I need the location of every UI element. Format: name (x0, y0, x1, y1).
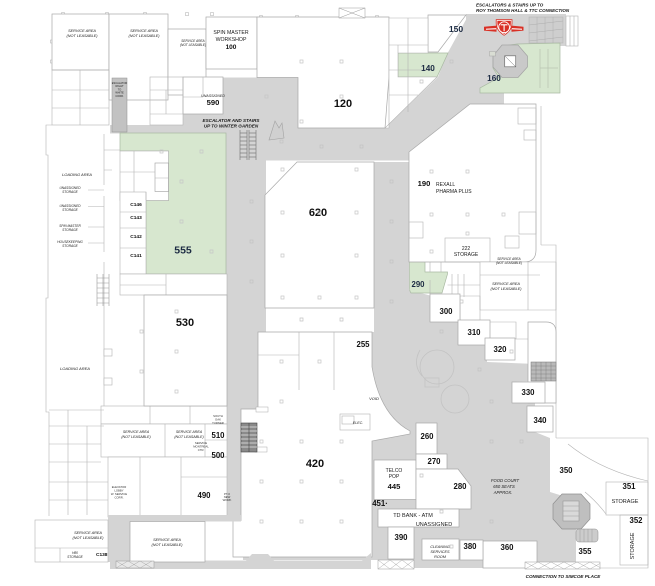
svg-text:380: 380 (463, 542, 477, 551)
svg-text:120: 120 (334, 98, 352, 110)
svg-text:SERVICE AREA: SERVICE AREA (492, 282, 520, 286)
svg-text:TURNER: TURNER (212, 421, 224, 425)
svg-text:APPROX.: APPROX. (493, 490, 513, 495)
svg-text:SERVICE AREA: SERVICE AREA (68, 29, 96, 33)
svg-text:352: 352 (629, 516, 643, 525)
svg-text:LOADING AREA: LOADING AREA (60, 366, 90, 371)
svg-text:STORAGE: STORAGE (62, 244, 78, 248)
svg-text:UP TO WINTER GARDEN: UP TO WINTER GARDEN (204, 124, 259, 129)
svg-text:REXALL: REXALL (436, 182, 455, 188)
svg-text:FOOD COURT: FOOD COURT (491, 478, 520, 483)
svg-text:530: 530 (176, 317, 194, 329)
svg-text:190: 190 (418, 179, 431, 188)
svg-text:ROY THOMSON HALL & TTC CONNECT: ROY THOMSON HALL & TTC CONNECTION (476, 8, 570, 13)
svg-text:SERVICES: SERVICES (430, 550, 450, 554)
svg-text:STORAGE: STORAGE (62, 228, 78, 232)
svg-text:340: 340 (533, 416, 547, 425)
svg-text:(NOT LEASABLE): (NOT LEASABLE) (72, 536, 104, 540)
svg-text:STORAGE: STORAGE (67, 555, 83, 559)
svg-text:555: 555 (174, 245, 192, 257)
svg-text:STORAGE: STORAGE (630, 532, 636, 559)
svg-text:WORK: WORK (223, 498, 232, 502)
svg-text:LOADING AREA: LOADING AREA (62, 172, 92, 177)
svg-text:SPIN MASTER: SPIN MASTER (213, 30, 248, 36)
svg-text:590: 590 (207, 98, 220, 107)
svg-text:650 SEATS: 650 SEATS (493, 484, 515, 489)
svg-text:351: 351 (622, 482, 636, 491)
svg-text:390: 390 (394, 533, 408, 542)
svg-text:330: 330 (521, 388, 535, 397)
svg-text:SERVICE AREA: SERVICE AREA (123, 430, 150, 434)
svg-text:C143: C143 (130, 215, 142, 221)
svg-text:STORAGE: STORAGE (612, 499, 639, 505)
svg-text:ESCALATOR AND STAIRS: ESCALATOR AND STAIRS (203, 118, 261, 123)
svg-text:TD BANK - ATM: TD BANK - ATM (393, 513, 433, 519)
svg-text:310: 310 (467, 328, 481, 337)
svg-text:290: 290 (411, 280, 425, 289)
svg-text:CORR.: CORR. (115, 94, 124, 98)
svg-text:420: 420 (306, 458, 324, 470)
svg-text:255: 255 (356, 340, 370, 349)
svg-text:150: 150 (449, 24, 464, 34)
svg-text:CLEANING: CLEANING (430, 545, 449, 549)
svg-text:ESCALATORS & STAIRS UP TO: ESCALATORS & STAIRS UP TO (476, 3, 544, 8)
svg-text:445: 445 (388, 482, 401, 491)
svg-text:C141: C141 (130, 253, 142, 259)
svg-text:STORAGE: STORAGE (62, 190, 78, 194)
svg-text:C146: C146 (130, 202, 142, 208)
svg-text:355: 355 (578, 547, 592, 556)
svg-text:UNASSIGNED: UNASSIGNED (416, 522, 452, 528)
svg-text:300: 300 (439, 307, 453, 316)
svg-text:510: 510 (211, 431, 225, 440)
svg-text:CORR.: CORR. (114, 496, 123, 500)
svg-text:260: 260 (420, 432, 434, 441)
svg-text:(NOT LEASABLE): (NOT LEASABLE) (490, 287, 522, 291)
svg-text:350: 350 (559, 466, 573, 475)
svg-text:C142: C142 (130, 234, 142, 240)
svg-text:SERVICE AREA: SERVICE AREA (153, 538, 181, 542)
svg-text:(NOT LEASABLE): (NOT LEASABLE) (66, 34, 98, 38)
svg-text:VOID: VOID (369, 396, 379, 401)
svg-text:280: 280 (453, 482, 467, 491)
svg-text:451·: 451· (372, 499, 388, 508)
svg-text:SERVICE AREA: SERVICE AREA (74, 531, 102, 535)
svg-text:(NOT LEASABLE): (NOT LEASABLE) (151, 543, 183, 547)
svg-text:PHARMA PLUS: PHARMA PLUS (436, 189, 472, 195)
svg-text:STORAGE: STORAGE (454, 252, 479, 258)
svg-text:UNASSIGNED: UNASSIGNED (201, 94, 225, 98)
svg-text:(NOT LEASABLE): (NOT LEASABLE) (174, 435, 203, 439)
svg-text:(NOT LEASABLE): (NOT LEASABLE) (180, 43, 206, 47)
svg-text:POP: POP (389, 474, 400, 480)
svg-text:360: 360 (500, 543, 514, 552)
svg-text:(NOT LEASABLE): (NOT LEASABLE) (496, 261, 522, 265)
svg-text:320: 320 (493, 345, 507, 354)
svg-text:ROOM: ROOM (434, 555, 447, 559)
svg-text:C138: C138 (96, 552, 108, 558)
svg-text:500: 500 (211, 451, 225, 460)
svg-text:490: 490 (197, 491, 211, 500)
svg-text:(NOT LEASABLE): (NOT LEASABLE) (128, 34, 160, 38)
svg-text:SERVICE AREA: SERVICE AREA (176, 430, 203, 434)
svg-text:270: 270 (427, 457, 441, 466)
svg-text:140: 140 (421, 64, 435, 73)
svg-text:(NOT LEASABLE): (NOT LEASABLE) (121, 435, 150, 439)
svg-text:160: 160 (487, 74, 501, 83)
svg-text:CTR.: CTR. (198, 448, 205, 452)
svg-text:SERVICE AREA: SERVICE AREA (130, 29, 158, 33)
svg-text:100: 100 (226, 44, 237, 51)
svg-text:WORKSHOP: WORKSHOP (216, 37, 247, 43)
svg-text:CONNECTION TO SIMCOE PLACE: CONNECTION TO SIMCOE PLACE (526, 574, 602, 579)
svg-text:STORAGE: STORAGE (62, 208, 78, 212)
svg-text:ELEC.: ELEC. (353, 421, 363, 425)
